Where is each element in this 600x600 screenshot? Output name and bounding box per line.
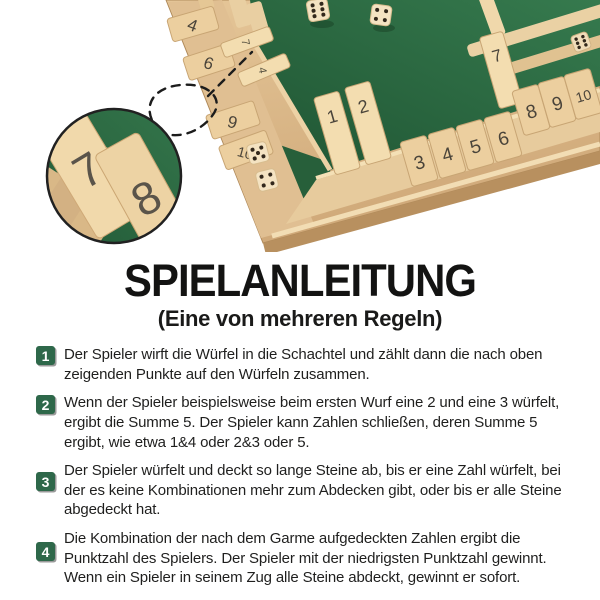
- step-2-text: Wenn der Spieler beispielsweise beim ers…: [64, 393, 572, 452]
- step-1: 1 Der Spieler wirft die Würfel in die Sc…: [36, 345, 572, 384]
- die-icon-corner-4: [255, 168, 279, 192]
- page-subtitle: (Eine von mehreren Regeln): [0, 306, 600, 332]
- step-4-number-badge: 4: [36, 542, 55, 561]
- instructions-header: SPIELANLEITUNG (Eine von mehreren Regeln…: [0, 258, 600, 332]
- instructions-steps: 1 Der Spieler wirft die Würfel in die Sc…: [36, 345, 572, 588]
- step-4-text: Die Kombination der nach dem Garme aufge…: [64, 529, 572, 588]
- step-2-number-badge: 2: [36, 395, 55, 414]
- page-title: SPIELANLEITUNG: [21, 258, 579, 303]
- die-icon-top-4: [370, 4, 393, 27]
- product-photo: 4 6 7 4 9 10 1 2: [0, 0, 600, 252]
- step-3: 3 Der Spieler würfelt und deckt so lange…: [36, 461, 572, 520]
- step-3-text: Der Spieler würfelt und deckt so lange S…: [64, 461, 572, 520]
- step-2: 2 Wenn der Spieler beispielsweise beim e…: [36, 393, 572, 452]
- step-1-text: Der Spieler wirft die Würfel in die Scha…: [64, 345, 572, 384]
- step-4: 4 Die Kombination der nach dem Garme auf…: [36, 529, 572, 588]
- die-icon-top-6: [306, 0, 330, 22]
- magnifier-circle: 7 8: [0, 100, 200, 252]
- die-icon-corner-5: [246, 141, 270, 165]
- step-3-number-badge: 3: [36, 472, 55, 491]
- board-photo-illustration: 4 6 7 4 9 10 1 2: [0, 0, 600, 252]
- step-1-number-badge: 1: [36, 346, 55, 365]
